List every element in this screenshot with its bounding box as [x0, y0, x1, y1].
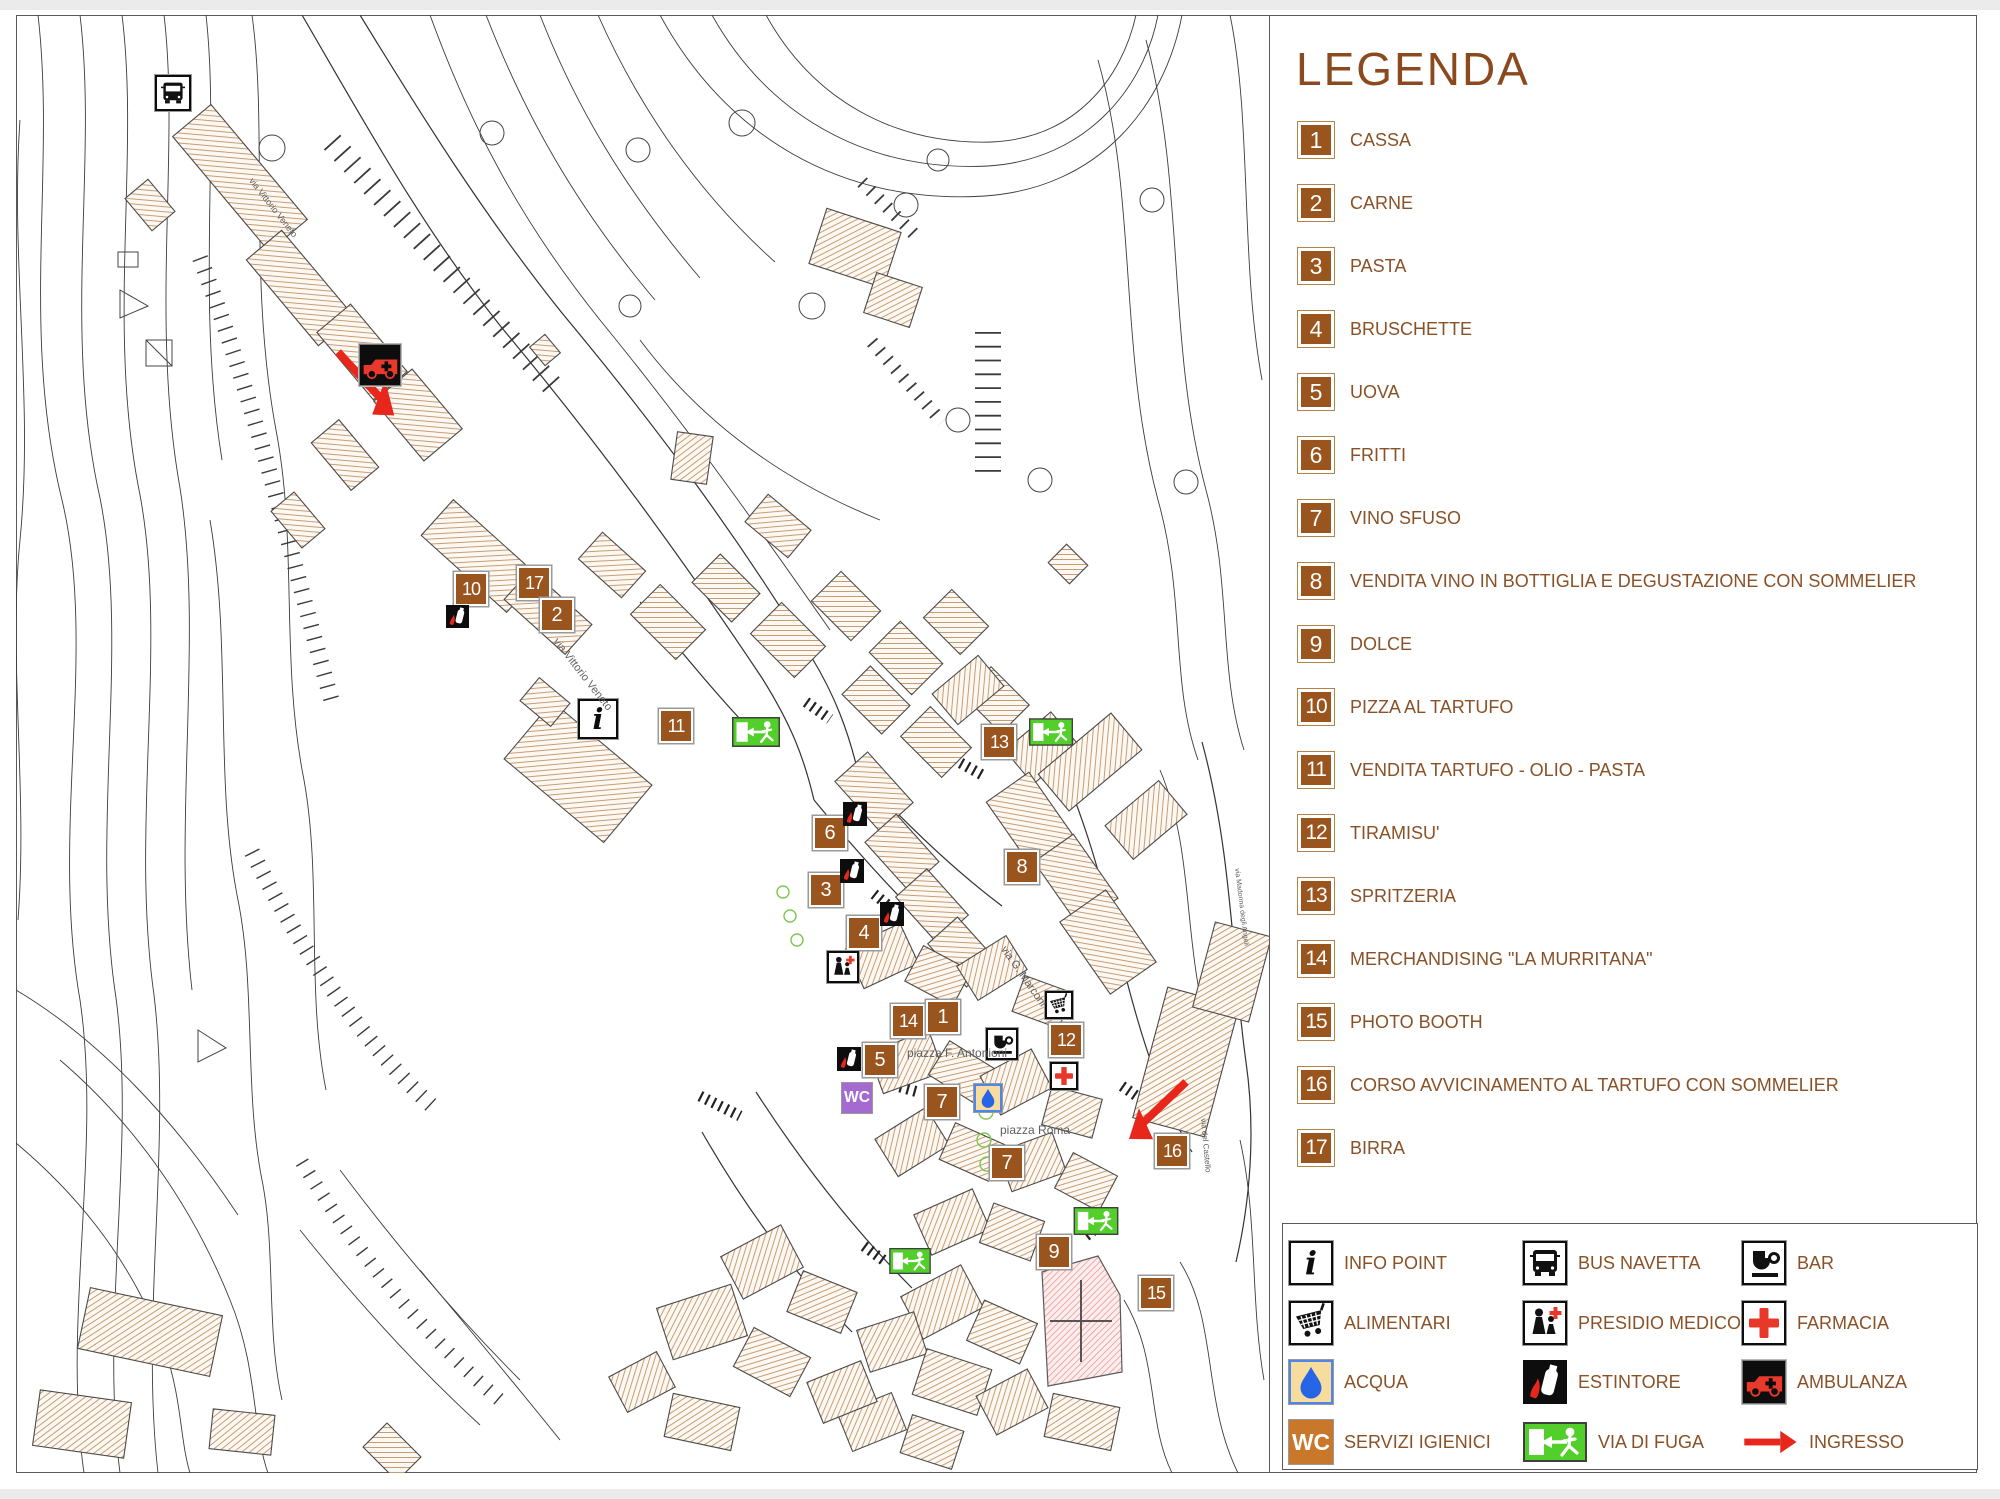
map-acqua-icon — [974, 1084, 1002, 1112]
legend-item-label: PASTA — [1350, 256, 1406, 277]
legend-item-1: 1CASSA — [1298, 118, 1411, 162]
acqua-icon — [1289, 1360, 1333, 1404]
legend-marker-5: 5 — [1298, 374, 1334, 410]
legend-item-11: 11VENDITA TARTUFO - OLIO - PASTA — [1298, 748, 1645, 792]
panel-divider — [1269, 15, 1270, 1473]
legend-item-10: 10PIZZA AL TARTUFO — [1298, 685, 1513, 729]
street-label: piazza F. Antonioni — [907, 1046, 1007, 1060]
legend-item-14: 14MERCHANDISING "LA MURRITANA" — [1298, 937, 1652, 981]
legend-marker-10: 10 — [1298, 689, 1334, 725]
legend-marker-7: 7 — [1298, 500, 1334, 536]
legend-item-17: 17BIRRA — [1298, 1126, 1405, 1170]
map-exit-icon — [732, 717, 780, 747]
icon-legend-label: PRESIDIO MEDICO — [1578, 1313, 1741, 1334]
svg-text:i: i — [1305, 1244, 1317, 1282]
legend-item-label: VINO SFUSO — [1350, 508, 1461, 529]
icon-legend-label: ALIMENTARI — [1344, 1313, 1451, 1334]
legend-marker-14: 14 — [1298, 941, 1334, 977]
map-estintore-icon — [837, 1047, 861, 1071]
icon-legend-label: BAR — [1797, 1253, 1834, 1274]
icon-legend-item-ingresso: INGRESSO — [1742, 1420, 1904, 1464]
farmacia-icon — [1742, 1301, 1786, 1345]
map-marker-3: 3 — [809, 873, 843, 907]
church-building — [1042, 1256, 1122, 1386]
map-exit-icon — [1073, 1207, 1119, 1235]
legend-item-label: VENDITA TARTUFO - OLIO - PASTA — [1350, 760, 1645, 781]
icon-legend-label: SERVIZI IGIENICI — [1344, 1432, 1491, 1453]
legend-marker-11: 11 — [1298, 752, 1334, 788]
legend-marker-1: 1 — [1298, 122, 1334, 158]
icon-legend-item-ambulanza: AMBULANZA — [1742, 1360, 1907, 1404]
legend-item-label: TIRAMISU' — [1350, 823, 1439, 844]
map-ambulanza-icon — [359, 344, 401, 386]
icon-legend-item-bar: BAR — [1742, 1241, 1834, 1285]
ingresso-icon — [1742, 1430, 1798, 1454]
icon-legend-item-wc: WCSERVIZI IGIENICI — [1289, 1420, 1491, 1464]
legend-item-2: 2CARNE — [1298, 181, 1413, 225]
street-label: piazza Roma — [1000, 1123, 1070, 1137]
legend-marker-9: 9 — [1298, 626, 1334, 662]
icon-legend-item-estintore: ESTINTORE — [1523, 1360, 1681, 1404]
legend-item-label: VENDITA VINO IN BOTTIGLIA E DEGUSTAZIONE… — [1350, 571, 1916, 592]
legend-item-label: PIZZA AL TARTUFO — [1350, 697, 1513, 718]
legend-item-label: FRITTI — [1350, 445, 1406, 466]
map-marker-14: 14 — [891, 1004, 925, 1038]
legend-item-6: 6FRITTI — [1298, 433, 1406, 477]
map-marker-8: 8 — [1005, 850, 1039, 884]
legend-item-9: 9DOLCE — [1298, 622, 1412, 666]
festival-map-page: { "legend": { "title": "LEGENDA", "items… — [0, 0, 2000, 1499]
legend-item-label: MERCHANDISING "LA MURRITANA" — [1350, 949, 1652, 970]
wc-icon: WC — [1289, 1420, 1333, 1464]
legend-marker-13: 13 — [1298, 878, 1334, 914]
map-marker-4: 4 — [847, 916, 881, 950]
map-marker-7: 7 — [925, 1085, 959, 1119]
map-marker-7: 7 — [990, 1146, 1024, 1180]
info-icon: i — [1289, 1241, 1333, 1285]
map-estintore-icon — [446, 605, 469, 628]
legend-item-7: 7VINO SFUSO — [1298, 496, 1461, 540]
estintore-icon — [1523, 1360, 1567, 1404]
cart-icon — [1289, 1301, 1333, 1345]
legend-item-label: SPRITZERIA — [1350, 886, 1456, 907]
exit-icon — [1523, 1420, 1587, 1464]
legend-item-15: 15PHOTO BOOTH — [1298, 1000, 1483, 1044]
map-marker-16: 16 — [1155, 1134, 1189, 1168]
legend-marker-12: 12 — [1298, 815, 1334, 851]
bar-icon — [1742, 1241, 1786, 1285]
legend-item-16: 16CORSO AVVICINAMENTO AL TARTUFO CON SOM… — [1298, 1063, 1839, 1107]
map-estintore-icon — [843, 802, 867, 826]
tree-circles — [259, 110, 1198, 494]
icon-legend-item-exit: VIA DI FUGA — [1523, 1420, 1704, 1464]
map-estintore-icon — [880, 902, 904, 926]
icon-legend-item-farmacia: FARMACIA — [1742, 1301, 1889, 1345]
map-marker-15: 15 — [1139, 1276, 1173, 1310]
map-marker-9: 9 — [1037, 1235, 1071, 1269]
map-bus-icon — [155, 75, 191, 111]
legend-marker-16: 16 — [1298, 1067, 1334, 1103]
icon-legend-item-medico: PRESIDIO MEDICO — [1523, 1301, 1741, 1345]
medico-icon — [1523, 1301, 1567, 1345]
icon-legend-item-bus: BUS NAVETTA — [1523, 1241, 1700, 1285]
legend-item-12: 12TIRAMISU' — [1298, 811, 1439, 855]
legend-marker-8: 8 — [1298, 563, 1334, 599]
map-marker-12: 12 — [1049, 1023, 1083, 1057]
page-top-strip — [0, 0, 2000, 10]
legend-item-5: 5UOVA — [1298, 370, 1400, 414]
legend-item-3: 3PASTA — [1298, 244, 1406, 288]
ambulanza-icon — [1742, 1360, 1786, 1404]
legend-item-label: DOLCE — [1350, 634, 1412, 655]
legend-marker-15: 15 — [1298, 1004, 1334, 1040]
legend-item-4: 4BRUSCHETTE — [1298, 307, 1472, 351]
legend-item-8: 8VENDITA VINO IN BOTTIGLIA E DEGUSTAZION… — [1298, 559, 1916, 603]
legend-marker-6: 6 — [1298, 437, 1334, 473]
map-cart-icon — [1045, 991, 1073, 1019]
legend-marker-2: 2 — [1298, 185, 1334, 221]
map-exit-icon — [1029, 718, 1073, 746]
legend-item-13: 13SPRITZERIA — [1298, 874, 1456, 918]
icon-legend-label: ACQUA — [1344, 1372, 1408, 1393]
legend-item-label: CORSO AVVICINAMENTO AL TARTUFO CON SOMME… — [1350, 1075, 1839, 1096]
map-estintore-icon — [840, 859, 864, 883]
icon-legend-item-cart: ALIMENTARI — [1289, 1301, 1451, 1345]
legend-title: LEGENDA — [1296, 42, 1530, 96]
bus-icon — [1523, 1241, 1567, 1285]
icon-legend-label: INGRESSO — [1809, 1432, 1904, 1453]
map-marker-2: 2 — [540, 598, 574, 632]
map-farmacia-icon — [1050, 1062, 1078, 1090]
map-exit-icon — [888, 1248, 932, 1274]
map-marker-1: 1 — [926, 1000, 960, 1034]
map-marker-5: 5 — [863, 1043, 897, 1077]
icon-legend-item-acqua: ACQUA — [1289, 1360, 1408, 1404]
icon-legend-label: BUS NAVETTA — [1578, 1253, 1700, 1274]
legend-item-label: CASSA — [1350, 130, 1411, 151]
page-bottom-strip — [0, 1489, 2000, 1499]
icon-legend-label: AMBULANZA — [1797, 1372, 1907, 1393]
icon-legend-item-info: iINFO POINT — [1289, 1241, 1447, 1285]
roads — [302, 15, 1251, 1332]
map-medico-icon — [827, 951, 859, 983]
misc-shapes — [118, 252, 226, 1062]
legend-item-label: CARNE — [1350, 193, 1413, 214]
map-marker-13: 13 — [982, 725, 1016, 759]
legend-item-label: BRUSCHETTE — [1350, 319, 1472, 340]
icon-legend-label: VIA DI FUGA — [1598, 1432, 1704, 1453]
map-marker-6: 6 — [813, 816, 847, 850]
legend-marker-17: 17 — [1298, 1130, 1334, 1166]
map-wc-icon: WC — [842, 1083, 872, 1113]
legend-marker-4: 4 — [1298, 311, 1334, 347]
icon-legend-label: FARMACIA — [1797, 1313, 1889, 1334]
legend-item-label: PHOTO BOOTH — [1350, 1012, 1483, 1033]
map-marker-11: 11 — [659, 709, 693, 743]
legend-item-label: BIRRA — [1350, 1138, 1405, 1159]
map-marker-17: 17 — [517, 566, 551, 600]
town-map — [16, 15, 1269, 1473]
legend-item-label: UOVA — [1350, 382, 1400, 403]
icon-legend-label: ESTINTORE — [1578, 1372, 1681, 1393]
icon-legend-label: INFO POINT — [1344, 1253, 1447, 1274]
map-marker-10: 10 — [454, 572, 488, 606]
legend-marker-3: 3 — [1298, 248, 1334, 284]
